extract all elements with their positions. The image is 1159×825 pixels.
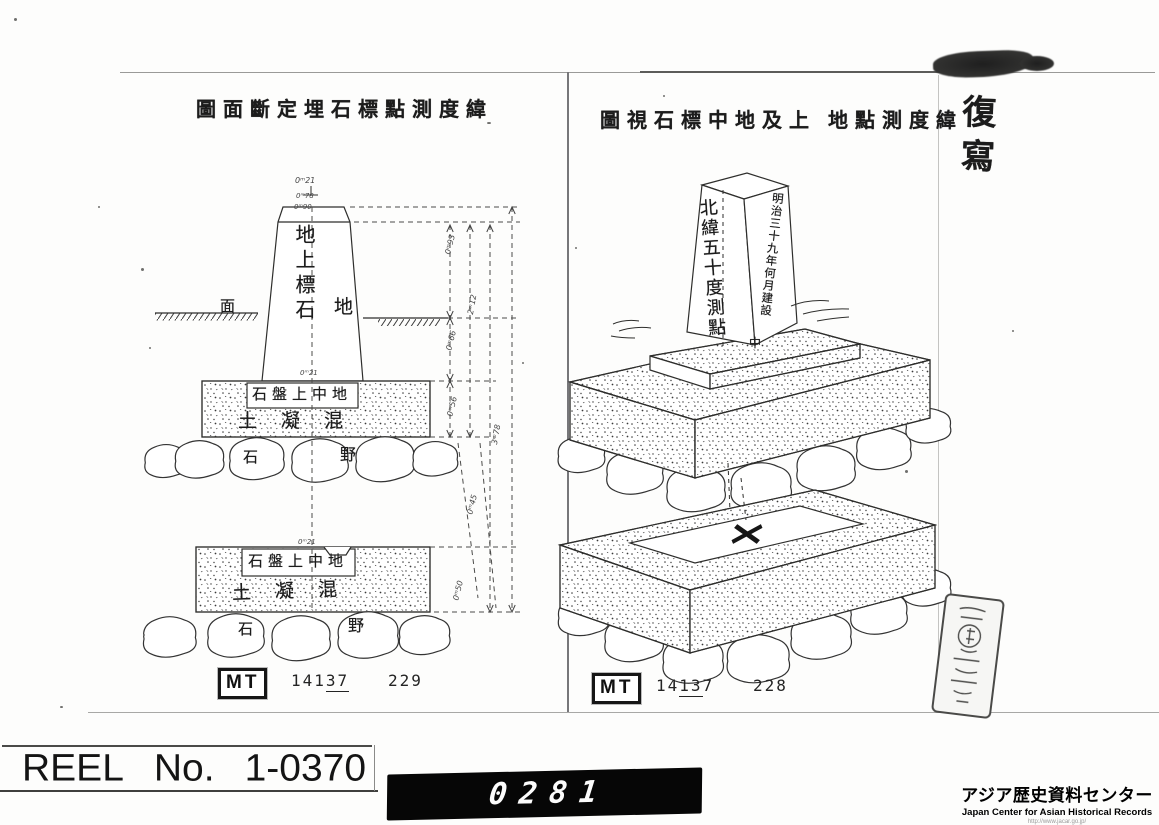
ground-char-left: 面 (220, 295, 235, 316)
lower-slab-label: 石盤上中地 (248, 550, 348, 571)
upper-boulder-char-left: 石 (243, 446, 258, 467)
scan-speck (60, 706, 63, 708)
obelisk-base-char: 中 (749, 334, 761, 351)
doc-number-suffix: 7 (703, 676, 715, 695)
jacar-logo-url: http://www.jacar.go.jp/ (959, 819, 1155, 825)
scan-speck (141, 268, 144, 271)
scan-speck (149, 347, 151, 349)
doc-number-left: 14137 (291, 671, 349, 690)
dim-label: 0ᵐ21 (298, 538, 316, 546)
upper-concrete-label: 土凝混 (238, 406, 367, 433)
dim-label: 0ᵐ21 (295, 176, 315, 185)
surface-stone-label: 地上標石 (289, 224, 318, 324)
dimension-arrowheads (447, 207, 515, 612)
lower-concrete-label: 土凝混 (232, 574, 362, 605)
page-top-border-dark (640, 71, 940, 73)
scan-speck (575, 247, 577, 249)
doc-number-prefix: 14 (656, 676, 679, 695)
reel-value: 1-0370 (245, 748, 366, 790)
mt-stamp-left: MT (218, 668, 267, 699)
doc-number-right: 14137 (656, 676, 714, 695)
scan-speck (663, 95, 665, 97)
dim-label: 0ᵐ90 (294, 203, 312, 211)
dim-label: 0ᵐ78 (296, 192, 314, 200)
scan-speck (1012, 330, 1014, 332)
left-page-title: 圖面斷定埋石標點測度緯 (196, 93, 493, 122)
reel-number-label: REELNo.1-0370 (22, 748, 366, 791)
frame-counter-digits: 0281 (487, 774, 611, 812)
scan-artifact-blob-small (1020, 56, 1054, 71)
scan-artifact-blob (933, 49, 1034, 78)
mt-stamp-right: MT (592, 673, 641, 704)
scan-speck (98, 206, 100, 208)
scanned-archive-page: { "scan": { "copy_stamp_vertical": "復寫",… (0, 0, 1159, 819)
jacar-logo-japanese: アジア歴史資料センター (959, 781, 1155, 806)
upper-boulder-char-right: 野 (340, 441, 356, 465)
page-bottom-border (88, 712, 1159, 713)
jacar-logo: アジア歴史資料センター Japan Center for Asian Histo… (959, 781, 1155, 825)
copy-stamp: 復寫 (948, 93, 1000, 183)
doc-number-prefix: 141 (291, 671, 326, 690)
doc-number-underlined: 13 (679, 676, 702, 697)
lower-boulder-char-left: 石 (238, 618, 253, 639)
reel-no-word: No. (154, 748, 215, 790)
scan-speck (487, 122, 491, 124)
scan-speck (905, 470, 908, 473)
scan-speck (143, 634, 145, 636)
jacar-logo-english: Japan Center for Asian Historical Record… (959, 807, 1155, 818)
page-number-left: 229 (388, 671, 423, 690)
page-number-right: 228 (753, 676, 788, 695)
reel-word: REEL (22, 748, 124, 790)
lower-boulder-row (143, 612, 450, 661)
upper-boulder-row (145, 437, 458, 482)
dim-label: 0ᵐ21 (300, 369, 318, 377)
ground-char-right: 地 (334, 292, 353, 319)
doc-number-underlined: 37 (326, 671, 349, 692)
frame-counter-display: 0281 (387, 767, 702, 820)
upper-slab-label: 石盤上中地 (252, 383, 352, 404)
scan-speck (14, 18, 17, 21)
right-perspective-drawing (555, 148, 955, 688)
lower-boulder-char-right: 野 (348, 612, 364, 636)
right-page-title: 圖視石標中地及上 地點測度緯 (600, 104, 963, 133)
reel-card-right-edge (374, 745, 375, 791)
scan-speck (522, 362, 524, 364)
